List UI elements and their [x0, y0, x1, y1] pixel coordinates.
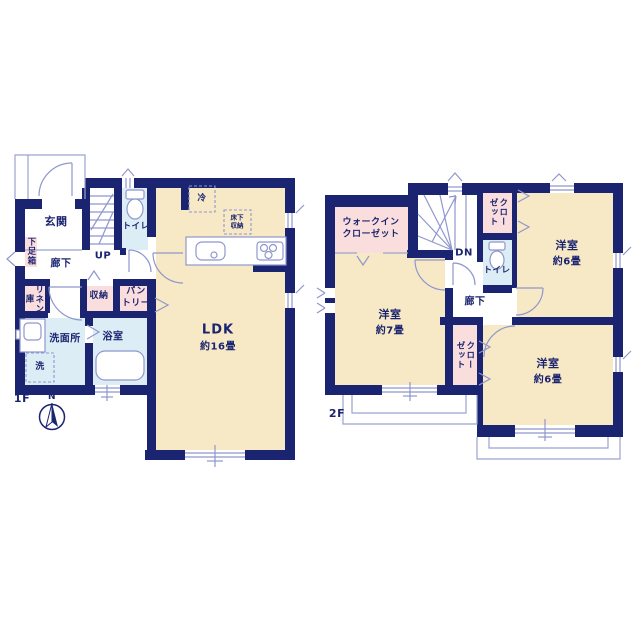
bedroom-ne-size-label: 約6畳 [553, 256, 581, 269]
vanity-sink [16, 319, 45, 352]
bedroom-w-label: 洋室 [379, 308, 402, 322]
floor-plan: 玄関 下足箱 廊下 UP トイレ リネン庫 収納 パン トリー 洗面所 洗 浴室… [0, 0, 640, 640]
washer-label: 洗 [35, 362, 45, 374]
floor1-label: 1F [14, 392, 30, 406]
floor1-stairs [90, 194, 114, 244]
underfloor-storage-label: 床下 収納 [231, 214, 244, 231]
kitchen-sink [196, 242, 225, 260]
bathroom-label: 浴室 [103, 331, 124, 344]
closet-top-label: クローゼット [487, 197, 507, 227]
refrigerator-label: 冷 [197, 193, 206, 204]
bedroom-se-size-label: 約6畳 [534, 374, 562, 387]
stove [257, 242, 283, 260]
floor-plan-drawing [0, 0, 640, 640]
walk-in-closet-label: ウォークイン クローゼット [342, 217, 399, 240]
toilet1-fixture [126, 190, 144, 219]
bedroom-se-label: 洋室 [537, 357, 560, 371]
closet-mid-label: クローゼット [454, 340, 474, 370]
shoe-box-label: 下足箱 [25, 236, 35, 266]
genkan-label: 玄関 [45, 215, 68, 229]
ldk-room [156, 188, 285, 450]
storage-label: 収納 [89, 291, 108, 303]
bedroom-w-size-label: 約7畳 [376, 325, 404, 338]
linen-label: リネン庫 [23, 284, 43, 314]
bathtub [96, 351, 144, 380]
pantry-label: パン トリー [122, 286, 151, 309]
storage-door-mark [88, 271, 100, 280]
washroom-label: 洗面所 [49, 333, 81, 346]
bedroom-ne-label: 洋室 [556, 239, 579, 253]
entrance-door [39, 163, 72, 196]
ldk-label: LDK [202, 323, 234, 340]
compass [40, 403, 65, 430]
stairs-down-label: DN [455, 247, 473, 260]
compass-n-label: N [48, 392, 56, 404]
toilet1-label: トイレ [122, 221, 149, 232]
kitchen-counter [186, 237, 286, 265]
floor2-stairs [418, 195, 466, 250]
stairs-up-label: UP [95, 250, 111, 263]
entrance-porch [15, 155, 85, 199]
ldk-size-label: 約16畳 [200, 341, 236, 354]
floor2-label: 2F [329, 407, 345, 421]
hallway1-label: 廊下 [51, 258, 72, 271]
hallway2-label: 廊下 [465, 296, 486, 309]
toilet2-label: トイレ [483, 265, 510, 276]
